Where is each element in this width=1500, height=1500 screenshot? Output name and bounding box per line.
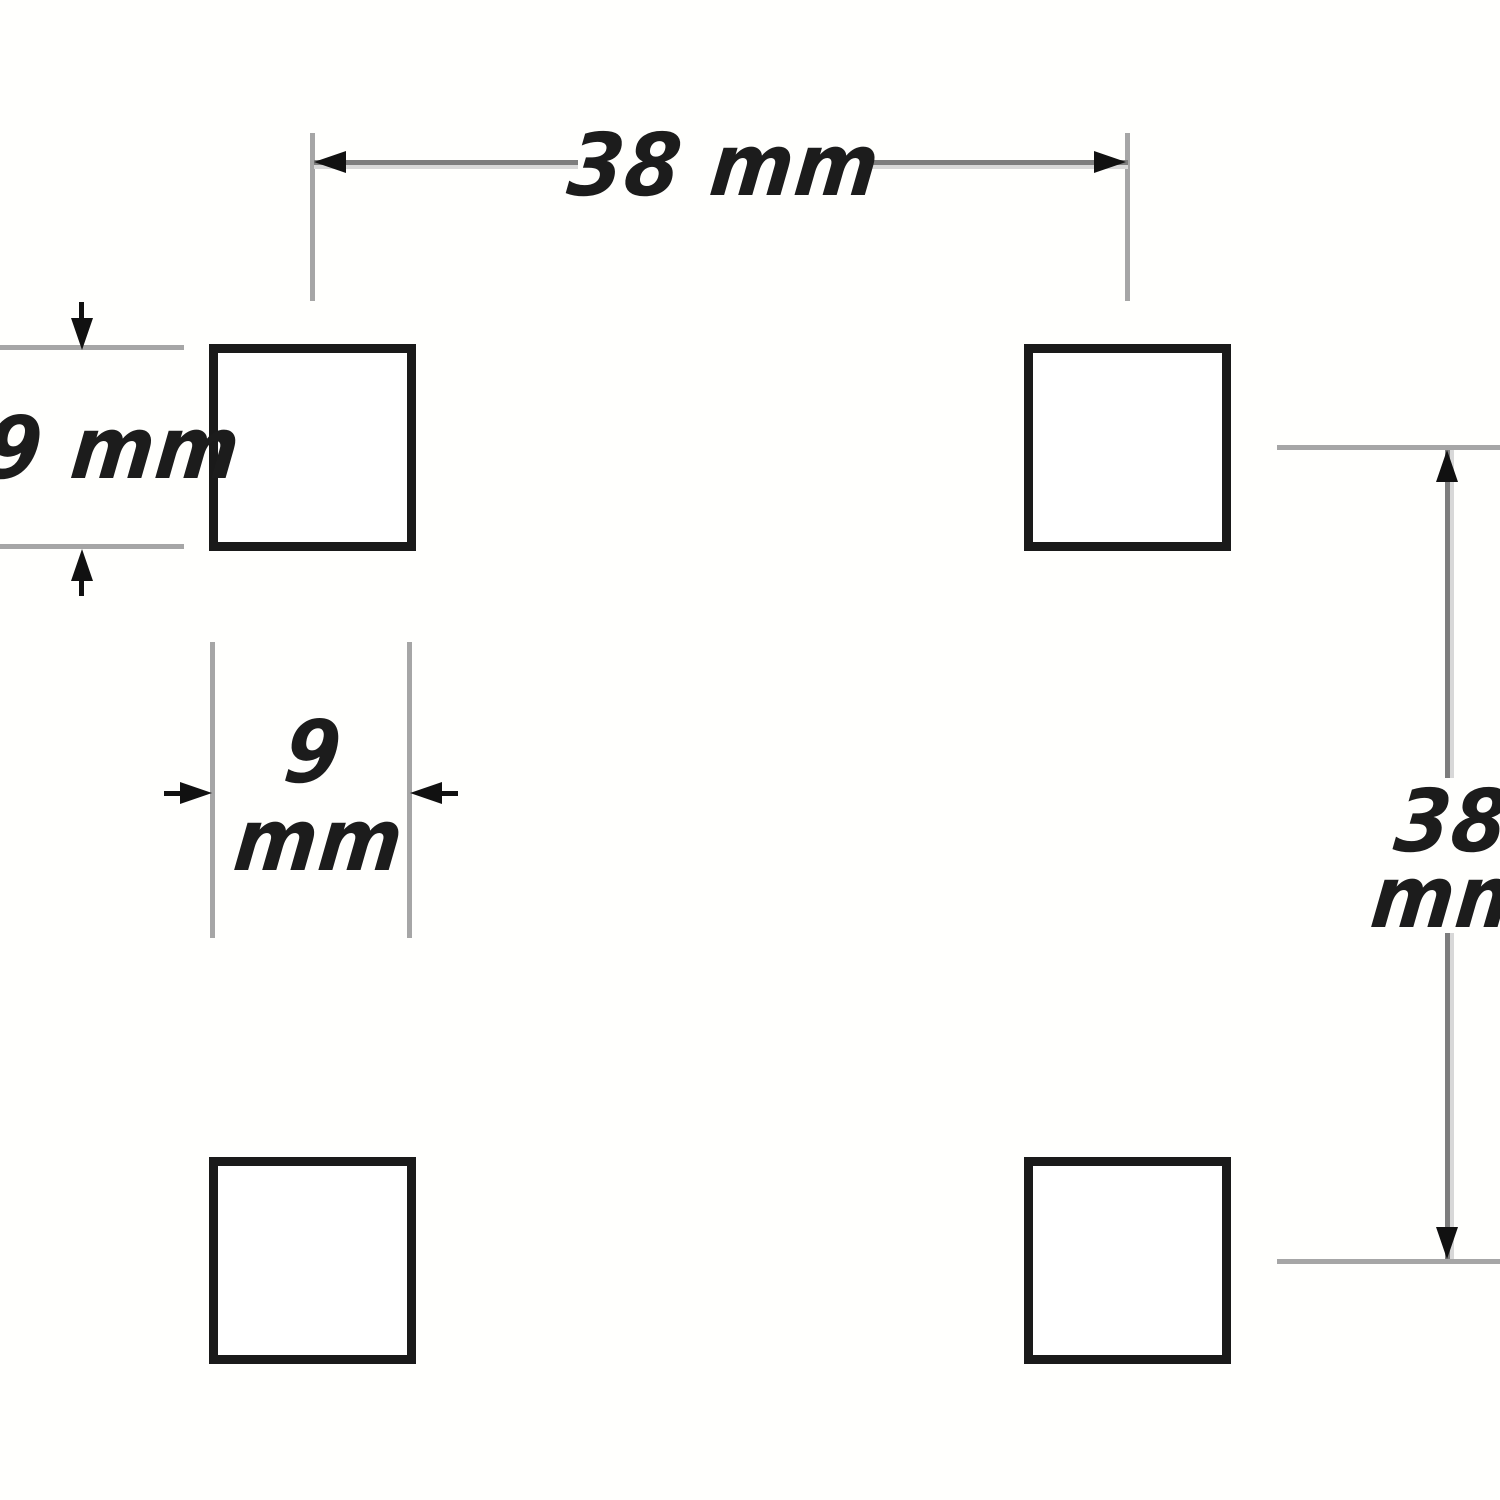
square-top-right — [1024, 344, 1231, 551]
square-bottom-left — [209, 1157, 416, 1364]
right-dim-arrowhead-up-icon — [1436, 450, 1458, 482]
right-dim-arrowhead-down-icon — [1436, 1227, 1458, 1259]
top-dim-line-right-segment — [872, 160, 1128, 165]
width-dim-arrow-tail-right — [438, 791, 458, 796]
top-dim-line-left-segment — [314, 160, 578, 165]
vertical-spacing-unit-label: mm — [1367, 855, 1500, 941]
top-dim-arrowhead-left-icon — [314, 151, 346, 173]
square-width-value-label: 9 — [280, 710, 346, 796]
top-spacing-label: 38 mm — [564, 123, 884, 209]
square-bottom-right — [1024, 1157, 1231, 1364]
left-dim-arrowhead-up-icon — [71, 549, 93, 581]
right-dim-extension-line-bottom — [1277, 1259, 1500, 1264]
left-dim-arrow-tail-bottom — [79, 578, 84, 596]
dimension-diagram: 38 mm 9 mm 9 mm 38 mm — [0, 0, 1500, 1500]
square-height-label: 9 mm — [0, 406, 245, 492]
right-dim-extension-line-top — [1277, 445, 1500, 450]
square-width-unit-label: mm — [230, 798, 408, 884]
width-dim-arrowhead-right-icon — [180, 782, 212, 804]
left-dim-arrowhead-down-icon — [71, 318, 93, 350]
right-dim-line-bottom-segment — [1445, 933, 1450, 1259]
top-dim-arrowhead-right-icon — [1094, 151, 1126, 173]
right-dim-line-top-segment — [1445, 450, 1450, 778]
